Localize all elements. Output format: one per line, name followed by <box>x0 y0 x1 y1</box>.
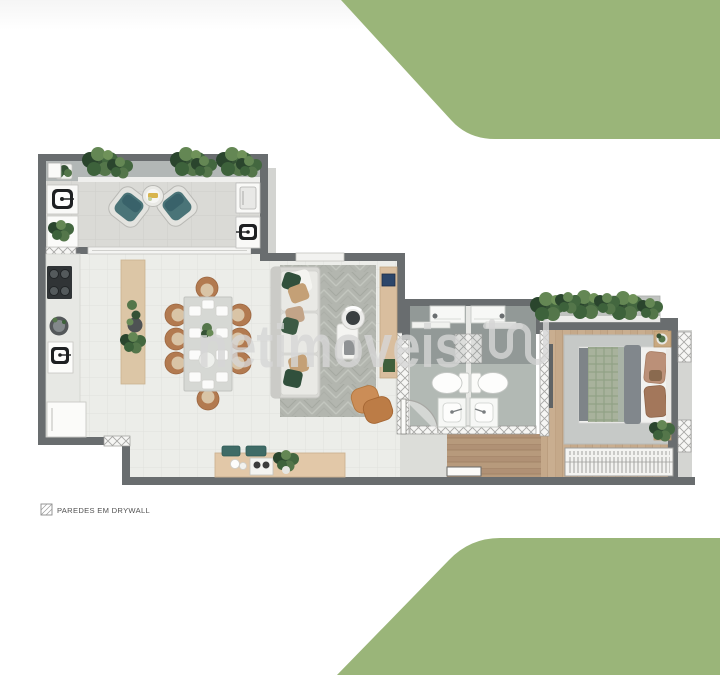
svg-text:netimoveis: netimoveis <box>197 313 463 380</box>
svg-text:PAREDES EM DRYWALL: PAREDES EM DRYWALL <box>57 506 150 515</box>
